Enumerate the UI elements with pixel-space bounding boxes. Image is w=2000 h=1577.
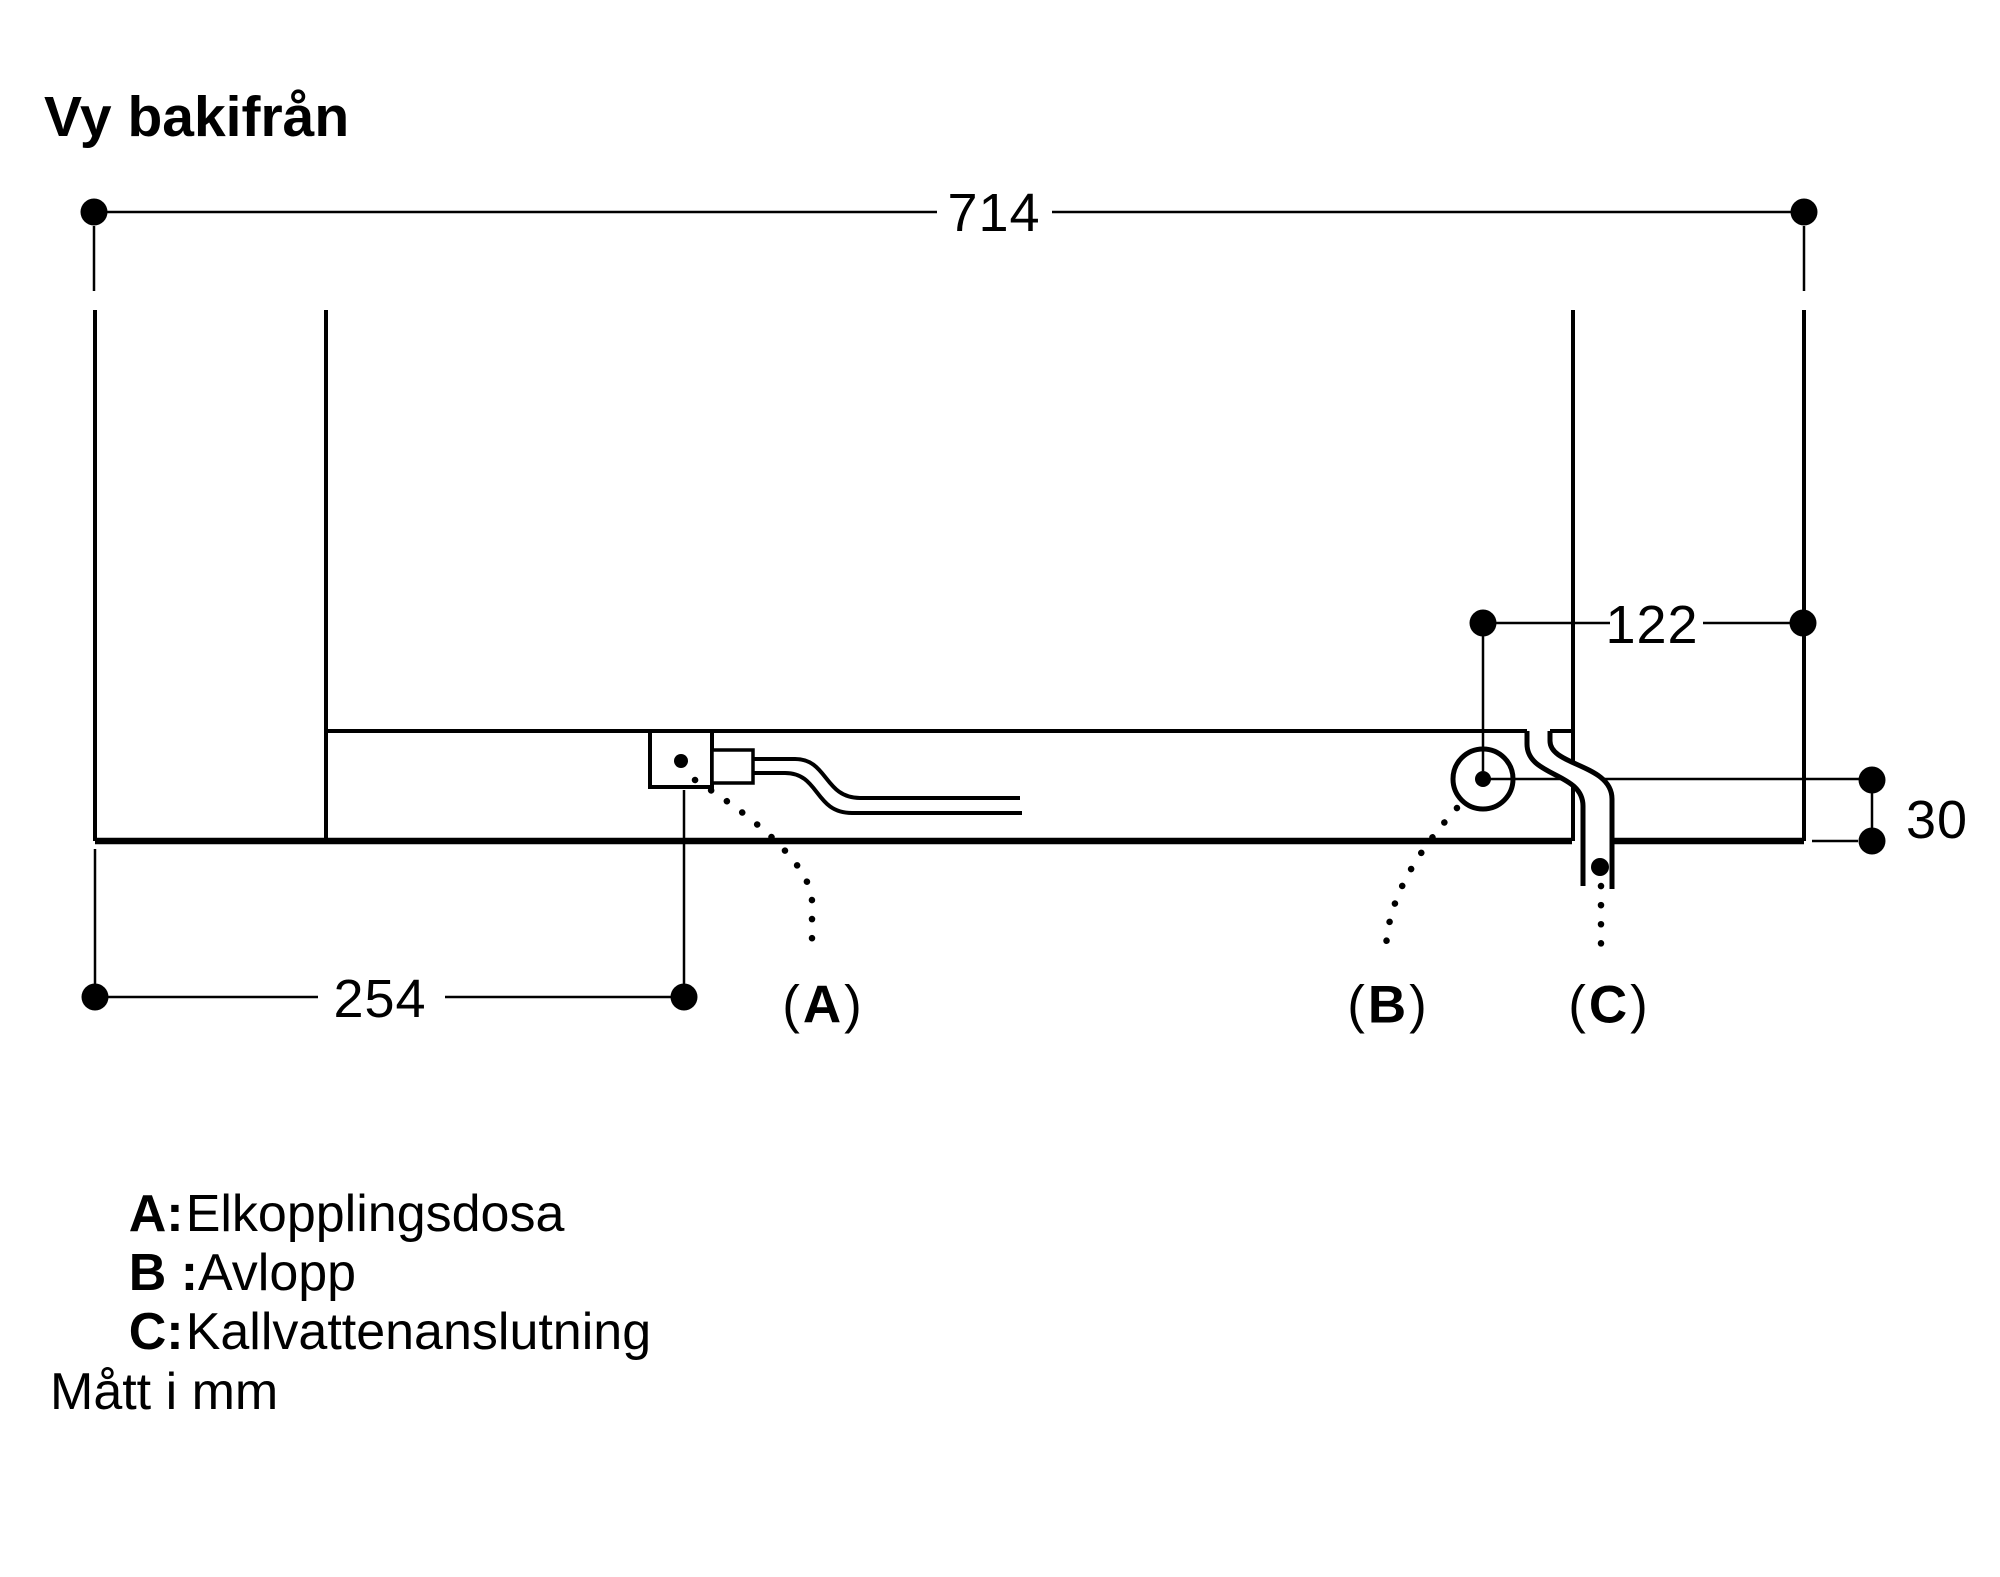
cable-line-lower [753,773,1022,813]
leader-a [695,780,812,952]
dot-30-bottom [1859,828,1886,855]
leader-b [1386,808,1457,948]
legend-text-c: Kallvattenanslutning [186,1303,651,1361]
dot-254-left [82,984,109,1011]
legend-text-b: Avlopp [198,1244,356,1302]
dot-122-right [1790,610,1817,637]
dim-value-254: 254 [333,968,426,1030]
dot-122-left [1470,610,1497,637]
callout-a-letter: A [800,976,844,1035]
callout-label-a: (A) [782,975,862,1036]
callout-label-c: (C) [1568,975,1648,1036]
legend-item-a: A:Elkopplingsdosa [42,1126,651,1185]
callout-b-open: ( [1347,976,1365,1035]
dim-value-122: 122 [1605,594,1698,656]
units-note: Mått i mm [50,1362,278,1422]
callout-b-letter: B [1365,976,1409,1035]
callout-c-letter: C [1586,976,1630,1035]
legend-text-a: Elkopplingsdosa [186,1185,565,1243]
callout-c-close: ) [1630,976,1648,1035]
legend-key-c: C: [129,1303,186,1362]
legend: A:Elkopplingsdosa B :Avlopp C:Kallvatten… [42,1126,651,1303]
legend-key-a: A: [129,1185,186,1244]
dim-value-714: 714 [947,182,1040,244]
dot-30-top [1859,767,1886,794]
callout-a-close: ) [844,976,862,1035]
junction-box-dot [674,754,688,768]
callout-b-close: ) [1409,976,1427,1035]
legend-key-b: B : [129,1244,198,1303]
hose-marker-dot [1591,858,1609,876]
drain-center-dot [1475,771,1491,787]
callout-c-open: ( [1568,976,1586,1035]
water-hose-c [1527,731,1612,889]
diagram-sheet: Vy bakifrån [0,0,2000,1577]
cable-connector [712,750,753,783]
dot-714-right [1791,199,1818,226]
dimension-30 [1483,779,1872,841]
dot-714-left [81,199,108,226]
dim-value-30: 30 [1906,789,1968,851]
dot-254-right [671,984,698,1011]
dimension-254 [95,790,684,997]
cable-line-upper [753,759,1020,798]
junction-box-a [650,731,1022,813]
callout-label-b: (B) [1347,975,1427,1036]
callout-a-open: ( [782,976,800,1035]
